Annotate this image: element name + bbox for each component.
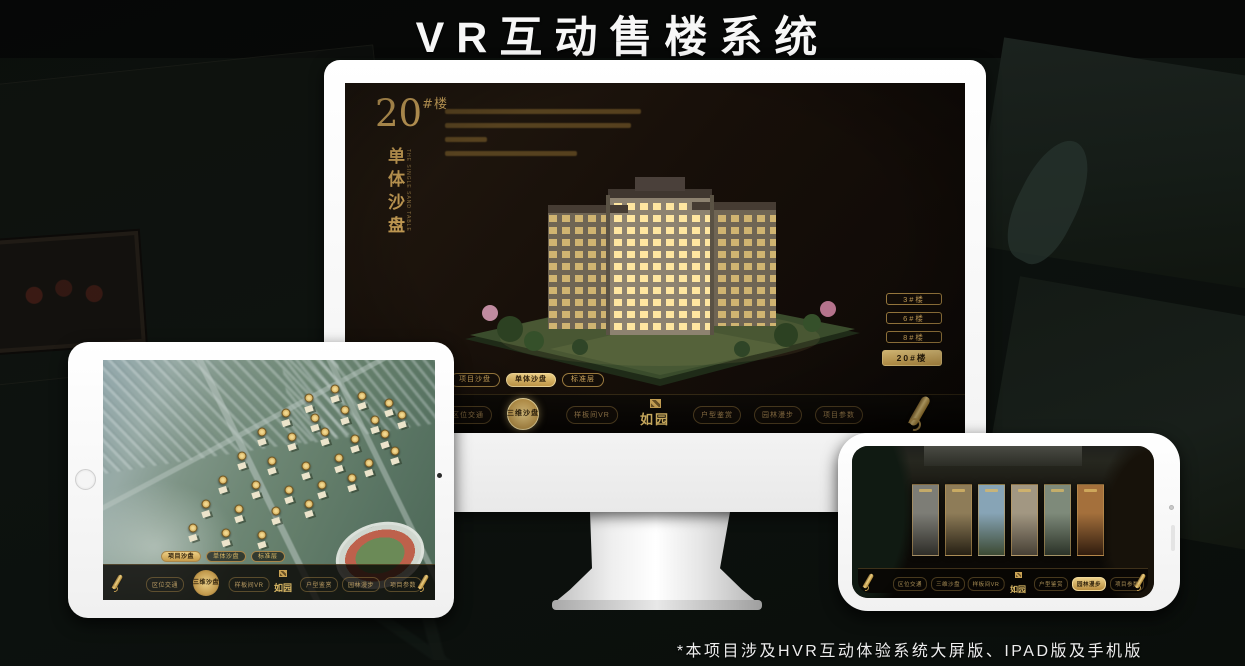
seal-icon [1015, 572, 1022, 578]
building-number-badge[interactable] [304, 394, 313, 403]
building-number-badge[interactable] [221, 528, 230, 537]
block-title: 20#楼 [375, 95, 448, 132]
building-block [331, 395, 340, 403]
scroll-icon[interactable] [420, 574, 426, 592]
nav-item-3d-sandtable[interactable]: 三维沙盘 [507, 398, 539, 430]
building-number-badge[interactable] [201, 500, 210, 509]
building-number-badge[interactable] [251, 480, 260, 489]
background-plaque [0, 231, 146, 353]
building-number-badge[interactable] [284, 485, 293, 494]
building-block [188, 534, 197, 542]
building-block [317, 491, 326, 499]
phone-device: 区位交通 三维沙盘 样板间VR 如园 户型鉴赏 园林漫步 项目参数 [838, 433, 1180, 611]
building-block [390, 457, 399, 465]
building-number-badge[interactable] [258, 531, 267, 540]
building-block [341, 417, 350, 425]
building-block [380, 441, 389, 449]
nav-item-garden-walk[interactable]: 园林漫步 [1072, 577, 1106, 591]
building-number-badge[interactable] [268, 456, 277, 465]
tab-single-sandtable[interactable]: 单体沙盘 [206, 551, 246, 562]
building-number-badge[interactable] [334, 454, 343, 463]
nav-item-project-params[interactable]: 项目参数 [815, 406, 863, 424]
scene-panel[interactable] [912, 484, 939, 556]
building-block [271, 517, 280, 525]
building-block [357, 402, 366, 410]
building-block [304, 510, 313, 518]
building-number-badge[interactable] [364, 459, 373, 468]
building-number-badge[interactable] [271, 507, 280, 516]
block-subtitle-en: THE SINGLE SAND TABLE [405, 149, 411, 232]
nav-item-location[interactable]: 区位交通 [146, 577, 184, 592]
phone-speaker [1171, 525, 1175, 551]
building-number-badge[interactable] [321, 428, 330, 437]
tablet-screen-aerial-map[interactable]: 项目沙盘 单体沙盘 标准层 区位交通 三维沙盘 样板间VR 如园 户型鉴赏 园林… [103, 360, 435, 600]
building-number-badge[interactable] [258, 428, 267, 437]
building-number-badge[interactable] [341, 406, 350, 415]
nav-item-location[interactable]: 区位交通 [893, 577, 927, 591]
nav-item-3d-sandtable[interactable]: 三维沙盘 [193, 570, 219, 596]
tablet-camera [437, 473, 442, 478]
tab-standard-floor[interactable]: 标准层 [251, 551, 285, 562]
scroll-icon[interactable] [913, 395, 925, 431]
building-block [238, 462, 247, 470]
monitor-stand [556, 512, 756, 609]
building-number-badge[interactable] [381, 430, 390, 439]
scene-panel[interactable] [978, 484, 1005, 556]
building-block [304, 405, 313, 413]
building-block [221, 539, 230, 547]
building-number-badge[interactable] [357, 392, 366, 401]
tablet-navbar: 区位交通 三维沙盘 样板间VR 如园 户型鉴赏 园林漫步 项目参数 [103, 564, 435, 600]
building-block [351, 445, 360, 453]
nav-item-floorplans[interactable]: 户型鉴赏 [1034, 577, 1068, 591]
nav-item-garden-walk[interactable]: 园林漫步 [754, 406, 802, 424]
page-title: VR互动售楼系统 [0, 3, 1245, 65]
nav-item-showroom-vr[interactable]: 样板间VR [229, 577, 270, 592]
scene-panel[interactable] [945, 484, 972, 556]
nav-item-showroom-vr[interactable]: 样板间VR [566, 406, 618, 424]
building-number-badge[interactable] [397, 411, 406, 420]
building-number-badge[interactable] [218, 476, 227, 485]
description-line [445, 123, 631, 128]
building-number-badge[interactable] [384, 399, 393, 408]
background-aerial-photo [971, 37, 1245, 288]
building-block [321, 438, 330, 446]
phone-panels [912, 484, 1104, 556]
footnote: *本项目涉及HVR互动体验系统大屏版、IPAD版及手机版 [677, 637, 1143, 661]
scroll-icon[interactable] [1137, 573, 1143, 591]
nav-item-floorplans[interactable]: 户型鉴赏 [693, 406, 741, 424]
tab-project-sandtable[interactable]: 项目沙盘 [450, 373, 500, 387]
building-block [347, 484, 356, 492]
nav-item-showroom-vr[interactable]: 样板间VR [968, 577, 1005, 591]
building-block [334, 465, 343, 473]
mode-tab-group: 项目沙盘 单体沙盘 标准层 [450, 373, 604, 387]
tablet-mode-tab-group: 项目沙盘 单体沙盘 标准层 [161, 551, 285, 562]
tab-single-sandtable[interactable]: 单体沙盘 [506, 373, 556, 387]
floor-button-3[interactable]: 3#楼 [886, 293, 942, 305]
building-block [258, 541, 267, 549]
brand-logo[interactable]: 如园 [274, 570, 292, 596]
description-line [445, 137, 487, 142]
building-number-badge[interactable] [311, 413, 320, 422]
floor-button-6[interactable]: 6#楼 [886, 312, 942, 324]
building-block [384, 409, 393, 417]
scroll-icon[interactable] [865, 573, 871, 591]
building-number-badge[interactable] [371, 416, 380, 425]
building-block [284, 496, 293, 504]
scene-panel[interactable] [1011, 484, 1038, 556]
tab-standard-floor[interactable]: 标准层 [562, 373, 604, 387]
monitor-stand-base [552, 600, 762, 610]
seal-icon [279, 570, 287, 577]
building-block [251, 491, 260, 499]
building-number-badge[interactable] [235, 504, 244, 513]
building-number-badge[interactable] [188, 524, 197, 533]
building-block [364, 469, 373, 477]
brand-logo-text: 如园 [1010, 584, 1026, 594]
phone-camera [1169, 505, 1174, 510]
building-number-badge[interactable] [351, 435, 360, 444]
building-block [281, 419, 290, 427]
poster-stage: VR互动售楼系统 20#楼 单体沙盘 THE SINGLE SAND TABLE [0, 0, 1245, 666]
building-block [268, 467, 277, 475]
building-3d-render[interactable] [430, 153, 880, 388]
building-block [371, 426, 380, 434]
brand-logo-text: 如园 [274, 584, 292, 594]
floor-button-8[interactable]: 8#楼 [886, 331, 942, 343]
tablet-home-button[interactable] [75, 469, 96, 490]
building-block [258, 438, 267, 446]
floor-button-20[interactable]: 20#楼 [882, 350, 942, 366]
building-block [301, 472, 310, 480]
scene-panel[interactable] [1077, 484, 1104, 556]
building-block [234, 515, 243, 523]
building-number-badge[interactable] [318, 480, 327, 489]
building-number-badge[interactable] [281, 408, 290, 417]
brand-logo[interactable]: 如园 [1010, 572, 1026, 597]
tab-project-sandtable[interactable]: 项目沙盘 [161, 551, 201, 562]
scene-panel[interactable] [1044, 484, 1071, 556]
scroll-icon[interactable] [114, 574, 120, 592]
building-number-badge[interactable] [288, 432, 297, 441]
description-line [445, 109, 641, 114]
nav-item-garden-walk[interactable]: 园林漫步 [342, 577, 380, 592]
floor-button-group: 3#楼 6#楼 8#楼 20#楼 [880, 293, 942, 373]
building-number-badge[interactable] [391, 447, 400, 456]
building-number-badge[interactable] [331, 384, 340, 393]
nav-item-project-params[interactable]: 项目参数 [384, 577, 422, 592]
nav-item-floorplans[interactable]: 户型鉴赏 [300, 577, 338, 592]
building-number-badge[interactable] [348, 473, 357, 482]
phone-screen-panorama[interactable]: 区位交通 三维沙盘 样板间VR 如园 户型鉴赏 园林漫步 项目参数 [852, 446, 1154, 598]
nav-item-3d-sandtable[interactable]: 三维沙盘 [931, 577, 965, 591]
building-block [288, 443, 297, 451]
brand-logo[interactable]: 如园 [640, 399, 670, 429]
seal-icon [649, 399, 660, 408]
building-block [218, 486, 227, 494]
building-block [201, 510, 210, 518]
building-number-badge[interactable] [304, 500, 313, 509]
building-block [311, 424, 320, 432]
building-number-badge[interactable] [301, 461, 310, 470]
ceiling-beam [924, 446, 1081, 466]
building-number-badge[interactable] [238, 452, 247, 461]
brand-logo-text: 如园 [640, 413, 670, 428]
block-subtitle: 单体沙盘 [382, 147, 407, 239]
building-block [397, 421, 406, 429]
phone-navbar: 区位交通 三维沙盘 样板间VR 如园 户型鉴赏 园林漫步 项目参数 [858, 568, 1148, 593]
tablet-device: 项目沙盘 单体沙盘 标准层 区位交通 三维沙盘 样板间VR 如园 户型鉴赏 园林… [68, 342, 454, 618]
